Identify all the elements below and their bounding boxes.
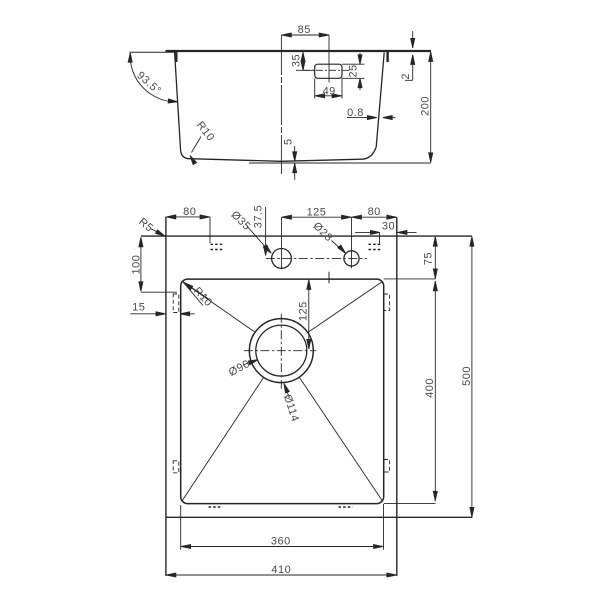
svg-text:35: 35 [290,54,302,67]
svg-text:75: 75 [422,252,434,265]
svg-text:5: 5 [283,138,295,145]
svg-text:37.5: 37.5 [253,205,265,228]
svg-text:500: 500 [461,366,473,386]
svg-text:2: 2 [400,73,412,80]
svg-text:R10: R10 [191,285,214,309]
svg-text:410: 410 [271,564,291,576]
svg-text:80: 80 [183,206,196,218]
svg-text:R5: R5 [136,216,155,235]
svg-text:200: 200 [419,96,431,116]
svg-text:15: 15 [132,302,145,314]
svg-text:30: 30 [382,221,395,233]
svg-text:100: 100 [131,255,143,275]
svg-text:125: 125 [297,301,309,321]
svg-text:R10: R10 [194,119,217,143]
svg-text:400: 400 [424,378,436,398]
svg-text:25: 25 [348,64,360,77]
svg-text:125: 125 [307,206,327,218]
svg-text:49: 49 [323,85,336,97]
svg-text:0.8: 0.8 [347,107,364,119]
svg-text:Ø114: Ø114 [281,393,301,423]
svg-text:Ø28: Ø28 [310,220,334,244]
svg-text:360: 360 [271,535,291,547]
svg-text:80: 80 [368,206,381,218]
svg-text:85: 85 [298,24,311,36]
svg-text:Ø35: Ø35 [228,209,252,233]
